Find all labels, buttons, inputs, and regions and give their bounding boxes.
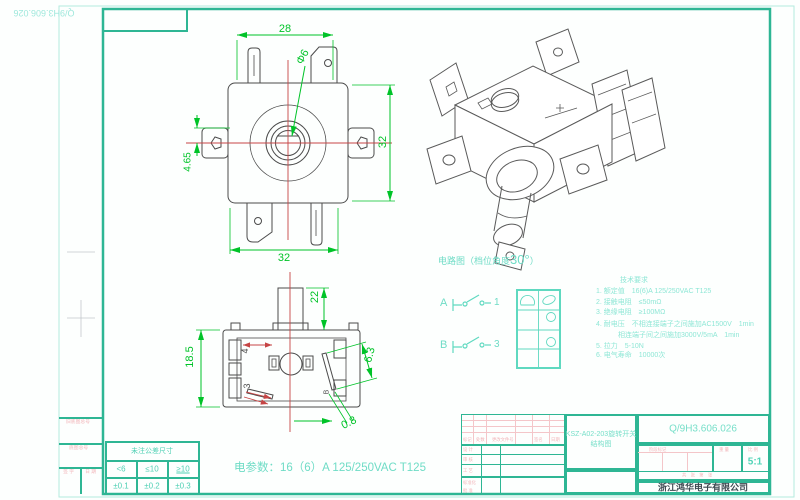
company-name: 浙江鸿华电子有限公司 (658, 481, 748, 494)
tolerance-value-2: ±0.2 (144, 482, 160, 491)
tolerance-table-title: 未注公差尺寸 (131, 446, 173, 456)
margin-label-old-master: 旧底图总号 (66, 418, 90, 425)
tech-req-line-2: 2. 接触电阻 ≤50mΩ (596, 298, 661, 308)
row-label-check: 审 核 (463, 456, 473, 462)
part-name-line1: KSZ-A02-203旋转开关 (566, 429, 636, 439)
rev-header-mark: 标记 (463, 436, 472, 442)
circuit-pole-a-label: A (440, 297, 447, 309)
row-label-standard: 标准化 (463, 479, 476, 485)
tech-req-line-7: 6. 电气寿命 10000次 (596, 351, 665, 361)
tolerance-range-1: <6 (116, 465, 125, 474)
engineering-drawing-sheet: Q/9H3.606.026 28 Φ6 32 4.65 32 22 18.5 6… (0, 0, 800, 500)
tolerance-value-3: ±0.3 (175, 482, 191, 491)
dim-width-bottom: 32 (278, 252, 290, 264)
isometric-view-drawing (427, 29, 665, 270)
corner-doc-number: Q/9H3.606.026 (13, 8, 74, 18)
tech-req-line-1: 1. 额定值 16(6)A 125/250VAC T125 (596, 287, 711, 297)
dim-shaft-length: 22 (309, 291, 321, 303)
tech-req-line-5: 相连端子间之间施加3000V/5mA 1min (604, 331, 739, 341)
row-label-design: 设 计 (463, 446, 473, 452)
margin-label-date: 日 期 (85, 468, 96, 475)
circuit-title: 电路图（档位角度30°） (438, 252, 539, 267)
sheet-count-label: 共 张 第 张 (682, 472, 712, 478)
circuit-title-prefix: 电路图（档位角度 (438, 256, 510, 266)
circuit-contact-1-label: 1 (494, 297, 500, 308)
dim-offset-left: 4.65 (183, 152, 194, 171)
scale-value: 5:1 (748, 457, 762, 468)
weight-label: 重 量 (719, 446, 729, 452)
tech-req-line-4: 4. 耐电压 不相连接端子之间施加AC1500V 1min (596, 320, 754, 330)
terminal-label-3: 3 (242, 383, 252, 388)
circuit-title-angle: 30° (510, 252, 530, 267)
row-label-approve: 批 准 (463, 487, 473, 493)
circuit-diagram-linework (453, 290, 560, 368)
top-view-centerlines (186, 60, 392, 240)
tolerance-value-1: ±0.1 (113, 482, 129, 491)
contact-label-b: B (324, 390, 331, 395)
dim-width-top: 28 (279, 23, 291, 35)
part-name-line2: 结构图 (591, 439, 612, 449)
dim-body-height: 18.5 (184, 346, 196, 367)
terminal-label-4: 4 (240, 348, 250, 353)
part-name-lower-box (565, 470, 637, 494)
top-view-dimensions (194, 35, 395, 254)
circuit-contact-3-label: 3 (494, 339, 500, 350)
tech-requirements-title: 技术要求 (620, 276, 648, 286)
rev-header-count: 处数 (476, 436, 485, 442)
stage-mark-label: 阶段标记 (649, 446, 666, 452)
tech-req-line-3: 3. 绝缘电阻 ≥100MΩ (596, 308, 665, 318)
electrical-parameters: 电参数：16（6）A 125/250VAC T125 (234, 459, 426, 475)
tolerance-range-3: ≥10 (176, 465, 189, 474)
margin-label-master: 底图总号 (69, 444, 88, 451)
circuit-pole-b-label: B (440, 339, 447, 351)
rev-header-docno: 更改文件号 (492, 436, 514, 442)
title-block-doc-number: Q/9H3.606.026 (669, 424, 737, 435)
scale-label: 比 例 (748, 446, 758, 452)
tolerance-range-2: ≤10 (145, 465, 158, 474)
dim-height-right: 32 (377, 136, 389, 148)
circuit-title-suffix: ） (530, 256, 539, 266)
row-label-process: 工 艺 (463, 467, 473, 473)
rev-header-sign: 签名 (534, 436, 543, 442)
rev-header-date: 日期 (551, 436, 560, 442)
front-view-red-leaders (243, 345, 272, 404)
margin-label-sign: 签 字 (63, 468, 74, 475)
